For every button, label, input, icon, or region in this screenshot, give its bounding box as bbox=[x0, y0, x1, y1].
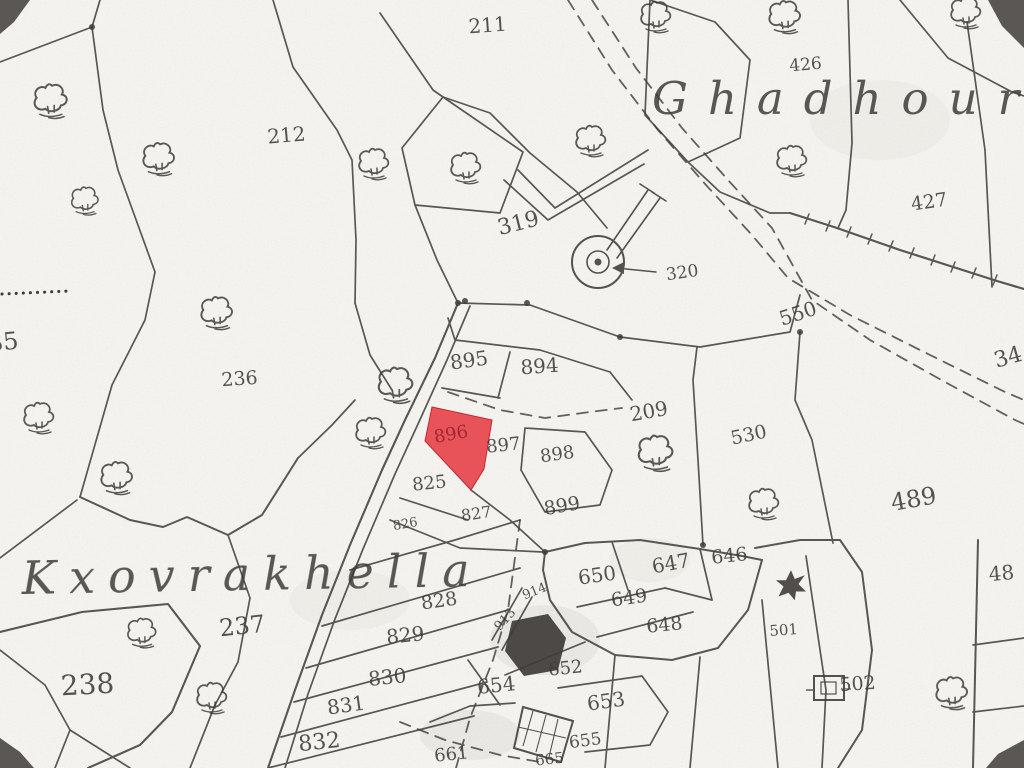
survey-dot bbox=[542, 549, 548, 555]
survey-dot bbox=[462, 298, 468, 304]
parcel-label-502: 502 bbox=[839, 672, 877, 696]
parcel-label-646: 646 bbox=[710, 543, 748, 569]
parcel-label-897: 897 bbox=[485, 433, 521, 457]
parcel-label-829: 829 bbox=[385, 621, 425, 649]
parcel-label-501: 501 bbox=[769, 620, 799, 640]
place-name-kxovrakhella: Kxovrakhella bbox=[20, 543, 483, 605]
parcel-label-665: 665 bbox=[534, 749, 564, 768]
parcel-label-237: 237 bbox=[218, 610, 266, 643]
parcel-label-35: 35 bbox=[0, 327, 20, 358]
cadastral-map: 8962112123193204264275502363523723820953… bbox=[0, 0, 1024, 768]
parcel-label-654: 654 bbox=[476, 671, 516, 699]
survey-dot bbox=[455, 300, 461, 306]
parcel-label-661: 661 bbox=[433, 742, 469, 766]
parcel-label-211: 211 bbox=[468, 12, 508, 39]
survey-dot bbox=[524, 300, 530, 306]
parcel-label-212: 212 bbox=[266, 121, 306, 148]
parcel-label-236: 236 bbox=[221, 367, 259, 391]
parcel-label-238: 238 bbox=[60, 667, 115, 703]
parcel-label-830: 830 bbox=[367, 663, 407, 691]
map-viewport[interactable]: 8962112123193204264275502363523723820953… bbox=[0, 0, 1024, 768]
parcel-label-48: 48 bbox=[988, 560, 1015, 586]
survey-dot bbox=[700, 542, 706, 548]
survey-dot bbox=[797, 329, 803, 335]
survey-dot bbox=[617, 334, 623, 340]
place-name-ghadhour: Ghadhour bbox=[652, 72, 1024, 125]
parcel-label-648: 648 bbox=[645, 612, 683, 638]
parcel-label-894: 894 bbox=[520, 353, 560, 380]
survey-dot bbox=[89, 24, 95, 30]
parcel-label-825: 825 bbox=[411, 471, 447, 495]
parcel-label-832: 832 bbox=[297, 728, 341, 757]
parcel-label-652: 652 bbox=[547, 656, 583, 680]
